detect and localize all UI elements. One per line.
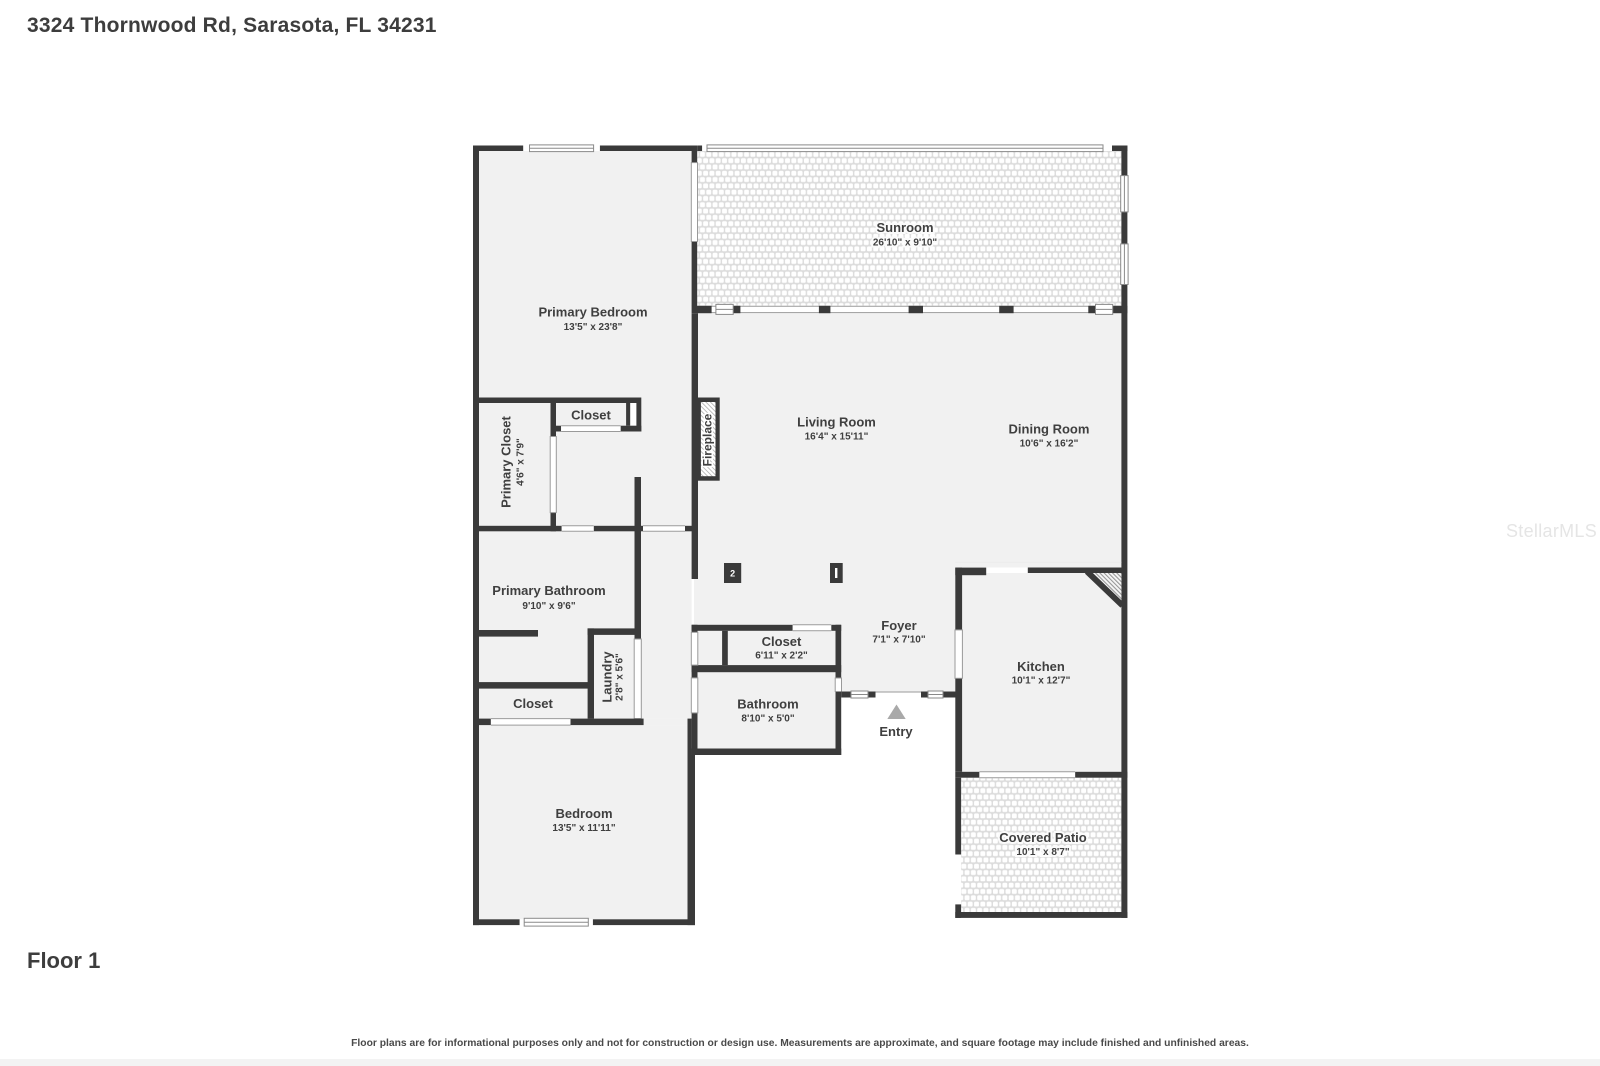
svg-text:13'5" x 11'11": 13'5" x 11'11" bbox=[552, 823, 615, 834]
svg-text:Primary Closet: Primary Closet bbox=[499, 415, 514, 507]
svg-text:2: 2 bbox=[730, 569, 735, 579]
svg-text:10'1" x 8'7": 10'1" x 8'7" bbox=[1016, 847, 1069, 858]
svg-text:Closet: Closet bbox=[513, 696, 553, 711]
svg-text:7'1" x 7'10": 7'1" x 7'10" bbox=[872, 634, 925, 645]
svg-text:Living Room: Living Room bbox=[797, 415, 876, 430]
svg-text:Primary Bedroom: Primary Bedroom bbox=[538, 305, 647, 320]
svg-text:4'6" x 7'9": 4'6" x 7'9" bbox=[516, 438, 527, 486]
svg-text:9'10" x 9'6": 9'10" x 9'6" bbox=[522, 601, 575, 612]
svg-text:10'6" x 16'2": 10'6" x 16'2" bbox=[1020, 439, 1079, 450]
svg-text:Fireplace: Fireplace bbox=[701, 413, 715, 466]
svg-text:Closet: Closet bbox=[762, 634, 802, 649]
svg-text:2'8" x 5'6": 2'8" x 5'6" bbox=[615, 653, 626, 701]
svg-text:13'5" x 23'8": 13'5" x 23'8" bbox=[564, 322, 623, 333]
svg-text:26'10" x 9'10": 26'10" x 9'10" bbox=[873, 238, 938, 249]
svg-text:Dining Room: Dining Room bbox=[1009, 422, 1090, 437]
svg-text:Kitchen: Kitchen bbox=[1017, 659, 1065, 674]
svg-text:Sunroom: Sunroom bbox=[876, 220, 933, 235]
svg-text:Foyer: Foyer bbox=[881, 618, 916, 633]
svg-text:Primary Bathroom: Primary Bathroom bbox=[492, 583, 605, 598]
svg-text:16'4" x 15'11": 16'4" x 15'11" bbox=[805, 432, 869, 443]
svg-text:10'1" x 12'7": 10'1" x 12'7" bbox=[1012, 676, 1071, 687]
svg-text:Bathroom: Bathroom bbox=[737, 697, 798, 712]
svg-text:Bedroom: Bedroom bbox=[555, 806, 612, 821]
svg-text:8'10" x 5'0": 8'10" x 5'0" bbox=[741, 713, 794, 724]
svg-text:Covered Patio: Covered Patio bbox=[999, 830, 1086, 845]
svg-text:Closet: Closet bbox=[571, 407, 611, 422]
svg-text:Entry: Entry bbox=[879, 724, 913, 739]
svg-text:Laundry: Laundry bbox=[600, 651, 615, 703]
svg-text:6'11" x 2'2": 6'11" x 2'2" bbox=[755, 651, 808, 662]
